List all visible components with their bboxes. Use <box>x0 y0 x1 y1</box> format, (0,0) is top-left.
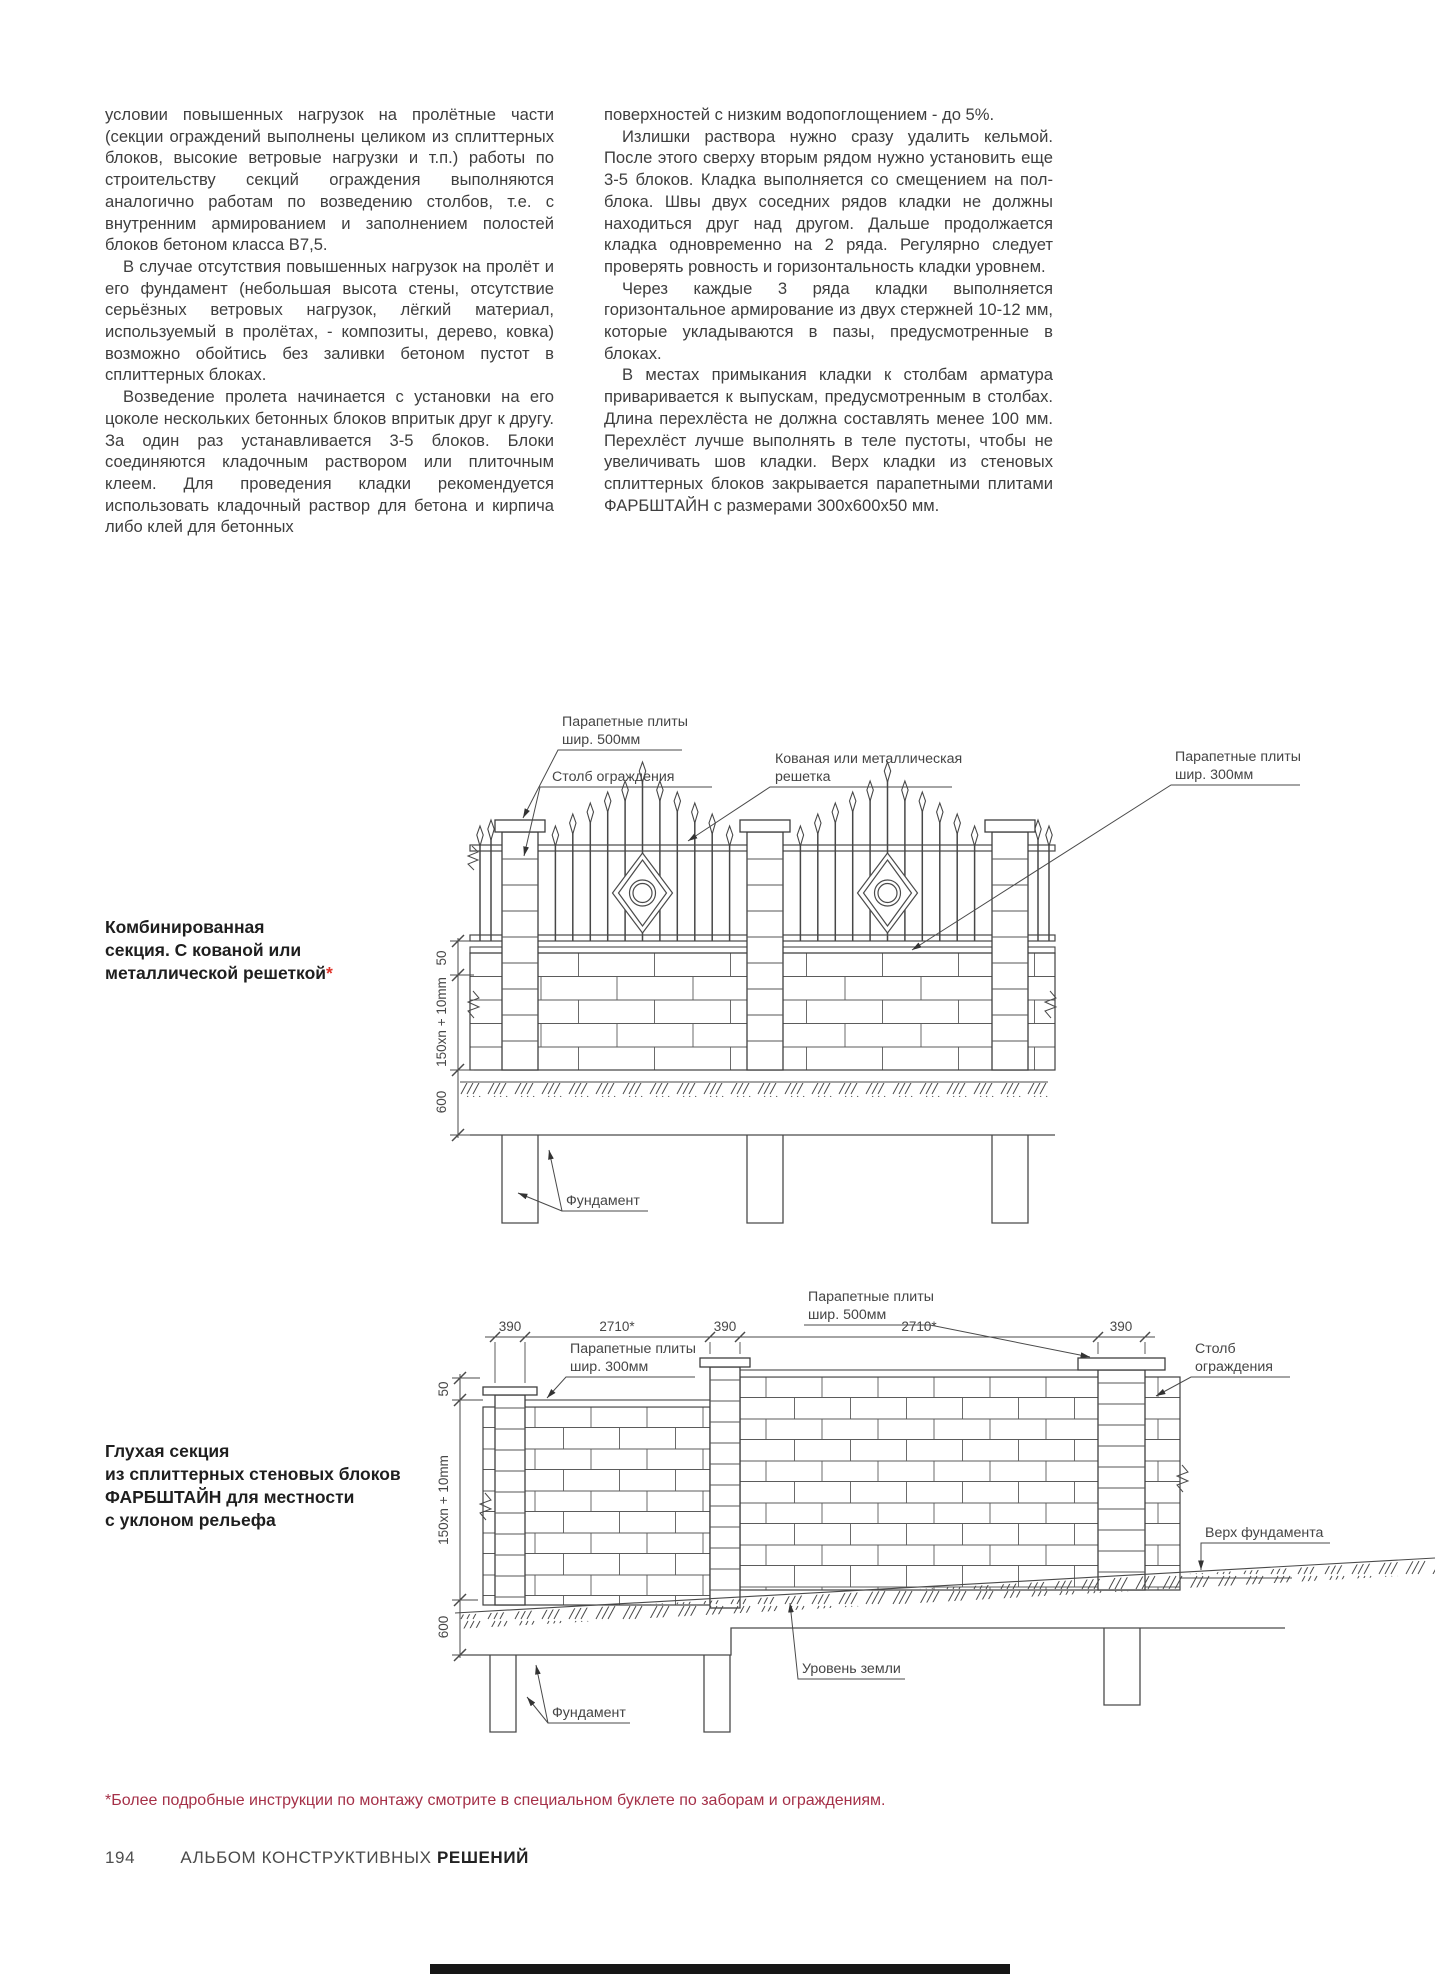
paragraph: поверхностей с низким водопоглощением - … <box>604 104 1053 126</box>
label-parapet-300: Парапетные плиты <box>1175 749 1301 765</box>
label-parapet-500-size: шир. 500мм <box>562 732 640 748</box>
wall-parapet-plate <box>525 1400 710 1407</box>
paragraph: В случае отсутствия повышенных нагрузок … <box>105 256 554 386</box>
label-post: Столб <box>1195 1341 1236 1357</box>
dim-50: 50 <box>434 950 449 965</box>
album-title: АЛЬБОМ КОНСТРУКТИВНЫХ РЕШЕНИЙ <box>180 1848 529 1867</box>
label-grate: Кованая или металлическая <box>775 751 962 767</box>
dim-rows: 150xn + 10mm <box>434 977 449 1067</box>
post-cap <box>985 820 1035 832</box>
album-title-bold: РЕШЕНИЙ <box>437 1848 529 1867</box>
label-foundation: Фундамент <box>566 1193 640 1209</box>
footnote: *Более подробные инструкции по монтажу с… <box>105 1792 1305 1810</box>
text-column-left: условии повышенных нагрузок на пролётные… <box>105 104 554 538</box>
dim-rows: 150xn + 10mm <box>436 1455 451 1545</box>
leader-line <box>912 785 1300 950</box>
paragraph: условии повышенных нагрузок на пролётные… <box>105 104 554 256</box>
caption-line: металлической решеткой* <box>105 962 333 985</box>
paragraph: Через каждые 3 ряда кладки выполняется г… <box>604 278 1053 365</box>
post-cap <box>495 820 545 832</box>
dim-390: 390 <box>1110 1319 1133 1334</box>
paragraph: Возведение пролета начинается с установк… <box>105 386 554 538</box>
bottom-scan-strip <box>430 1964 1010 1974</box>
label-post-2: ограждения <box>1195 1359 1273 1375</box>
label-parapet-300: Парапетные плиты <box>570 1341 696 1357</box>
ground-hatch <box>460 1083 1048 1097</box>
dimension-chain: 50 150xn + 10mm 600 <box>434 935 474 1141</box>
dim-600: 600 <box>436 1616 451 1639</box>
label-parapet-500: Парапетные плиты <box>808 1289 934 1305</box>
leader-line <box>804 1325 1090 1357</box>
label-ground-level: Уровень земли <box>802 1661 901 1677</box>
post-cap <box>700 1358 750 1367</box>
diagram1-caption: Комбинированная секция. С кованой или ме… <box>105 916 333 985</box>
wall-parapet-plate <box>740 1370 1098 1377</box>
leader-line <box>547 1377 695 1398</box>
caption-line: секция. С кованой или <box>105 939 333 962</box>
label-parapet-300-size: шир. 300мм <box>570 1359 648 1375</box>
page-footer: 194 АЛЬБОМ КОНСТРУКТИВНЫХ РЕШЕНИЙ <box>105 1848 529 1868</box>
album-page: условии повышенных нагрузок на пролётные… <box>0 0 1448 1974</box>
label-post: Столб ограждения <box>552 769 674 785</box>
dim-390: 390 <box>714 1319 737 1334</box>
dim-600: 600 <box>434 1091 449 1114</box>
label-parapet-300-size: шир. 300мм <box>1175 767 1253 783</box>
paragraph: В местах примыкания кладки к столбам арм… <box>604 364 1053 516</box>
diagram2-drawing: 390 2710* 390 2710* 390 <box>330 1245 1448 1745</box>
text-column-right: поверхностей с низким водопоглощением - … <box>604 104 1053 516</box>
caption-line: Комбинированная <box>105 916 333 939</box>
dim-2710: 2710* <box>599 1319 635 1334</box>
label-parapet-500-size: шир. 500мм <box>808 1307 886 1323</box>
label-foundation: Фундамент <box>552 1705 626 1721</box>
label-foundation-top: Верх фундамента <box>1205 1525 1324 1541</box>
leader-line <box>518 1193 562 1211</box>
dim-50: 50 <box>436 1381 451 1396</box>
post-cap <box>483 1387 537 1395</box>
dim-390: 390 <box>499 1319 522 1334</box>
page-number: 194 <box>105 1848 175 1868</box>
post-cap <box>1078 1358 1165 1370</box>
dim-2710: 2710* <box>901 1319 937 1334</box>
label-grate-2: решетка <box>775 769 831 785</box>
diagram1-drawing: 50 150xn + 10mm 600 Парапетные плиты шир… <box>330 700 1340 1245</box>
label-parapet-500: Парапетные плиты <box>562 714 688 730</box>
leader-line <box>1201 1543 1330 1570</box>
paragraph: Излишки раствора нужно сразу удалить кел… <box>604 126 1053 278</box>
post-cap <box>740 820 790 832</box>
